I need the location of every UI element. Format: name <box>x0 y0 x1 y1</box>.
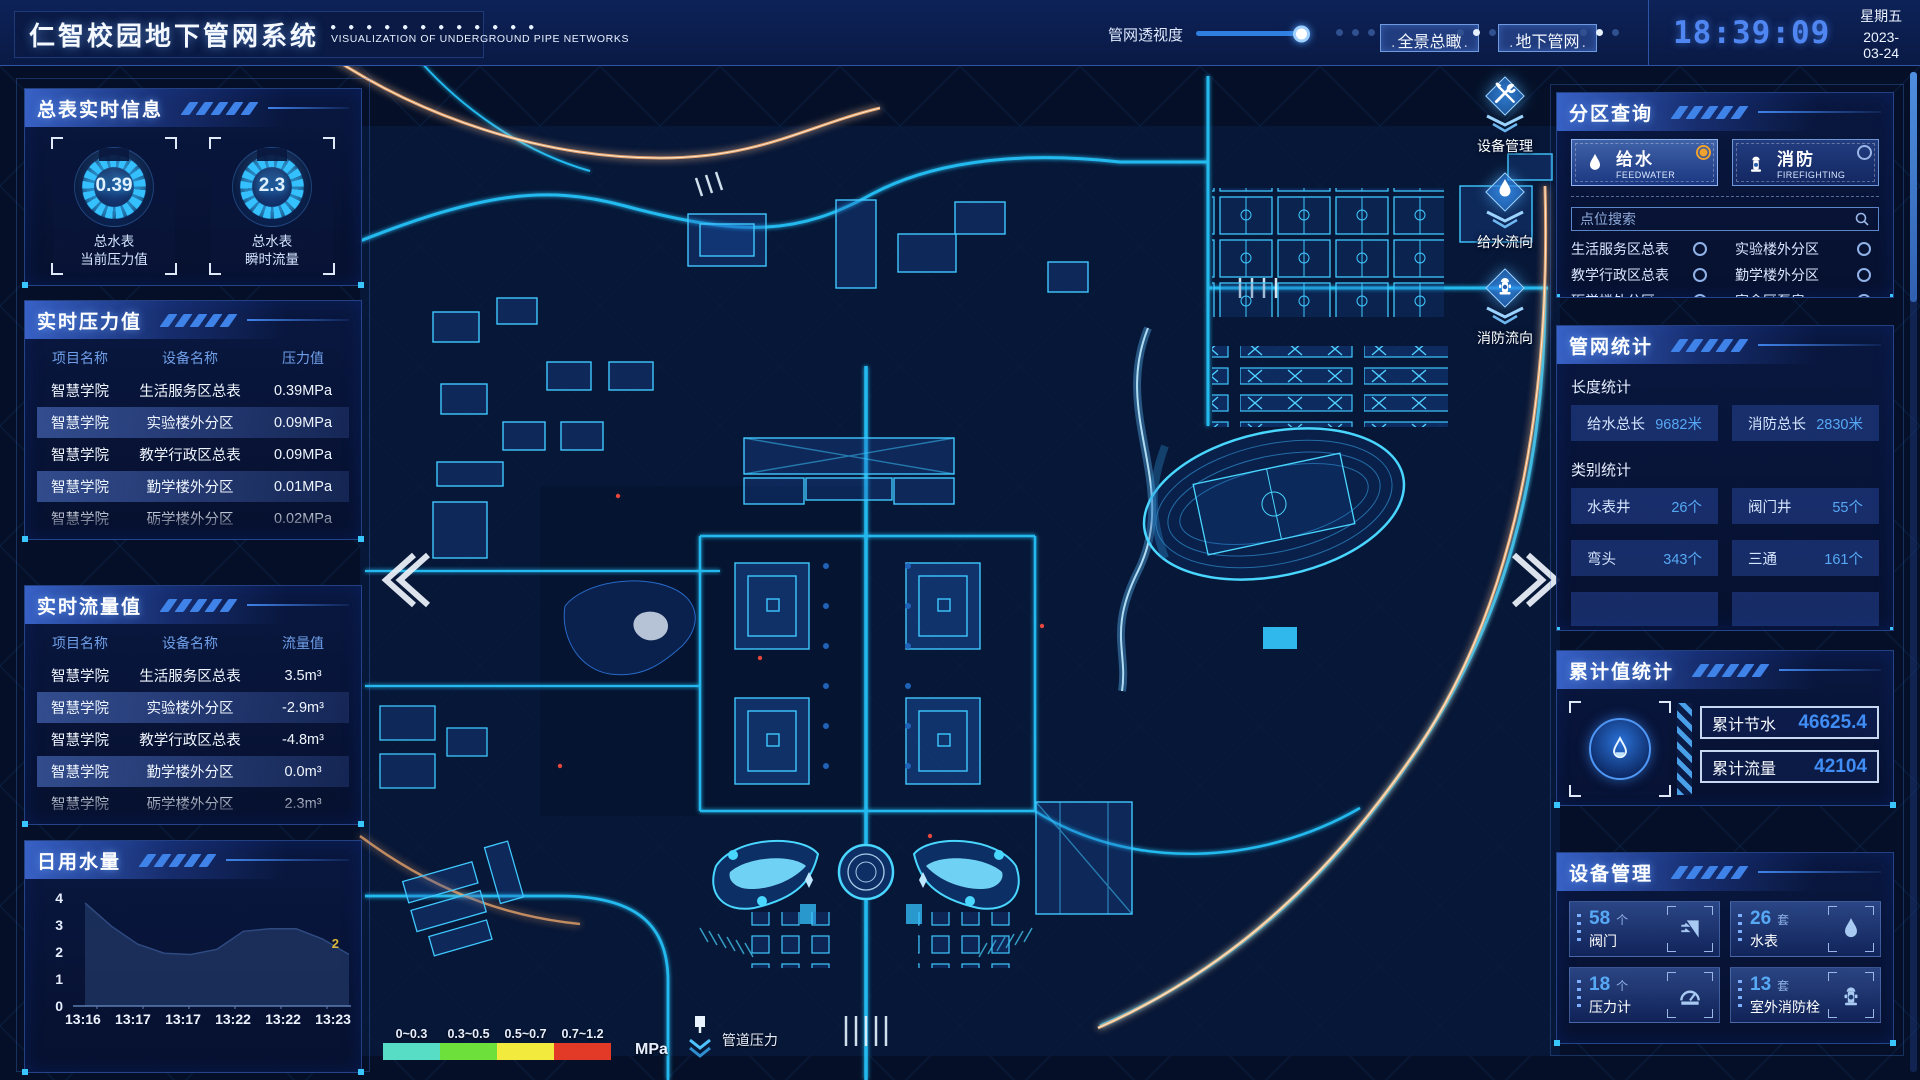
device-unit: 套 <box>1777 913 1789 927</box>
legend-color-segment <box>497 1043 554 1060</box>
cell: 智慧学院 <box>37 761 123 782</box>
hazard-stripe-decoration <box>1677 703 1692 795</box>
tool-label: 设备管理 <box>1477 136 1533 156</box>
flow-gauge: 2.3 <box>232 147 312 227</box>
dots-decoration <box>1580 29 1619 36</box>
gauge-label: 瞬时流量 <box>211 251 333 269</box>
panel-title: 管网统计 <box>1569 332 1653 359</box>
panel-header: 实时压力值 <box>25 301 361 339</box>
table-row: 智慧学院 生活服务区总表 0.39MPa <box>37 375 349 406</box>
gauge-value: 2.3 <box>233 175 311 197</box>
x-tick: 13:16 <box>65 1011 101 1027</box>
stat-item: 给水总长 9682米 <box>1571 405 1718 441</box>
cumulative-value: 42104 <box>1814 756 1867 778</box>
slashes-decoration <box>1675 106 1750 119</box>
panel-realtime-pressure: 实时压力值 项目名称 设备名称 压力值 智慧学院 生活服务区总表 0.39MPa… <box>24 300 362 540</box>
cell: 教学行政区总表 <box>123 729 257 750</box>
radio-selected[interactable] <box>1696 145 1711 160</box>
panel-header: 累计值统计 <box>1557 651 1893 689</box>
panel-title: 累计值统计 <box>1569 657 1674 684</box>
hydrant-icon <box>1830 974 1872 1016</box>
toggle-label-en: FIREFIGHTING <box>1777 170 1845 180</box>
stat-item: 消防总长 2830米 <box>1732 405 1879 441</box>
table-row: 智慧学院 实验楼外分区 -2.9m³ <box>37 692 349 723</box>
cell: 智慧学院 <box>37 412 123 433</box>
y-tick: 0 <box>41 998 63 1014</box>
option-label: 生活服务区总表 <box>1571 239 1669 259</box>
title-dots-decoration <box>331 25 547 30</box>
cell: 勤学楼外分区 <box>123 476 257 497</box>
map-tool-fire-flow[interactable]: 消防流向 <box>1477 264 1533 348</box>
zone-option[interactable]: 教学行政区总表 <box>1571 265 1715 285</box>
tool-label: 给水流向 <box>1477 232 1533 252</box>
scrollbar-thumb[interactable] <box>1910 72 1917 302</box>
stat-item: 阀门井 55个 <box>1732 488 1879 524</box>
cell: 0.0m³ <box>257 764 349 780</box>
device-unit: 个 <box>1616 979 1628 993</box>
cell: 0.39MPa <box>257 383 349 399</box>
table-row: 智慧学院 教学行政区总表 -4.8m³ <box>37 724 349 755</box>
header-bar: 仁智校园地下管网系统 VISUALIZATION OF UNDERGROUND … <box>0 0 1920 66</box>
column-header: 项目名称 <box>37 348 123 368</box>
stat-item-clipped <box>1732 592 1879 626</box>
zone-option[interactable]: 砺学楼外分区 <box>1571 291 1715 298</box>
zone-option[interactable]: 实验楼外分区 <box>1735 239 1879 259</box>
option-label: 勤学楼外分区 <box>1735 265 1819 285</box>
device-label: 室外消防栓 <box>1750 997 1830 1017</box>
map-tools: 设备管理 给水流向 消防流向 <box>1464 72 1546 348</box>
legend-range: 0.7~1.2 <box>554 1027 611 1041</box>
option-label: 教学行政区总表 <box>1571 265 1669 285</box>
pipe-opacity-slider[interactable] <box>1196 31 1306 36</box>
device-count: 26 <box>1750 908 1771 929</box>
radio-unselected[interactable] <box>1857 294 1871 298</box>
water-drop-icon <box>1482 168 1528 210</box>
cell: 智慧学院 <box>37 697 123 718</box>
cell: 智慧学院 <box>37 380 123 401</box>
panel-header: 分区查询 <box>1557 93 1893 131</box>
column-header: 设备名称 <box>123 348 257 368</box>
cell: 0.01MPa <box>257 479 349 495</box>
slashes-decoration <box>185 102 260 115</box>
stat-item-clipped <box>1571 592 1718 626</box>
panel-header: 日用水量 <box>25 841 361 879</box>
y-tick: 3 <box>41 917 63 933</box>
date: 2023-03-24 <box>1858 29 1904 61</box>
device-count: 13 <box>1750 974 1771 995</box>
chart-end-value: 2 <box>332 936 339 951</box>
gauge-card-pressure: 0.39 总水表 当前压力值 <box>53 139 175 273</box>
hydrant-icon <box>1482 264 1528 306</box>
firefighting-toggle-button[interactable]: 消防 FIREFIGHTING <box>1732 139 1879 186</box>
cell: 智慧学院 <box>37 729 123 750</box>
stat-value: 9682米 <box>1655 413 1702 434</box>
radio-unselected[interactable] <box>1693 294 1707 298</box>
stat-label: 水表井 <box>1587 496 1631 517</box>
panel-title: 设备管理 <box>1569 859 1653 886</box>
stat-label: 给水总长 <box>1587 413 1645 434</box>
legend-range: 0~0.3 <box>383 1027 440 1041</box>
stat-label: 阀门井 <box>1748 496 1792 517</box>
slashes-decoration <box>1696 664 1771 677</box>
pipe-pressure-icon <box>686 1014 714 1060</box>
cumulative-value: 46625.4 <box>1798 712 1867 734</box>
radio-unselected[interactable] <box>1693 242 1707 256</box>
water-saving-icon-card <box>1571 703 1669 795</box>
chevron-down-icon <box>1483 306 1527 326</box>
clock: 18:39:09 星期五 2023-03-24 <box>1648 0 1904 66</box>
cell: 教学行政区总表 <box>123 444 257 465</box>
y-tick: 4 <box>41 890 63 906</box>
daily-water-chart: 4 3 2 1 0 2 13:16 13:17 13:17 13:22 13:2… <box>25 879 361 1064</box>
map-tool-device-management[interactable]: 设备管理 <box>1477 72 1533 156</box>
chevron-down-icon <box>1483 114 1527 134</box>
y-tick: 1 <box>41 971 63 987</box>
cell: 0.02MPa <box>257 511 349 527</box>
toggle-label-en: FEEDWATER <box>1616 170 1675 180</box>
daily-water-area <box>73 893 351 1009</box>
legend-color-segment <box>554 1043 611 1060</box>
stat-item: 三通 161个 <box>1732 540 1879 576</box>
tool-label: 消防流向 <box>1477 328 1533 348</box>
dots-decoration <box>1336 29 1375 36</box>
legend-unit: MPa <box>635 1041 668 1059</box>
pressure-gauge: 0.39 <box>74 147 154 227</box>
device-card-pressure-gauge[interactable]: 18个 压力计 <box>1569 967 1720 1023</box>
device-card-outdoor-hydrant[interactable]: 13套 室外消防栓 <box>1730 967 1881 1023</box>
slashes-decoration <box>164 314 239 327</box>
cell: 实验楼外分区 <box>123 697 257 718</box>
cell: 智慧学院 <box>37 508 123 529</box>
search-input[interactable] <box>1572 211 1854 227</box>
cell: 智慧学院 <box>37 444 123 465</box>
option-label: 砺学楼外分区 <box>1571 291 1655 298</box>
legend-color-segment <box>440 1043 497 1060</box>
panel-title: 实时压力值 <box>37 307 142 334</box>
radio-unselected[interactable] <box>1693 268 1707 282</box>
app-subtitle: VISUALIZATION OF UNDERGROUND PIPE NETWOR… <box>331 33 629 45</box>
stat-label: 弯头 <box>1587 548 1616 569</box>
time-display: 18:39:09 <box>1673 15 1830 51</box>
pipe-opacity-label: 管网透视度 <box>1108 24 1183 45</box>
radio-unselected[interactable] <box>1857 268 1871 282</box>
cell: 勤学楼外分区 <box>123 761 257 782</box>
panel-header: 总表实时信息 <box>25 89 361 127</box>
zone-option[interactable]: 勤学楼外分区 <box>1735 265 1879 285</box>
point-search-box <box>1571 207 1879 231</box>
slider-thumb[interactable] <box>1293 25 1310 42</box>
x-tick: 13:22 <box>215 1011 251 1027</box>
panel-daily-water: 日用水量 4 3 2 1 0 2 13:16 13:17 13:17 13:22… <box>24 840 362 1073</box>
slashes-decoration <box>164 599 239 612</box>
chevron-down-icon <box>1483 210 1527 230</box>
dots-decoration <box>1457 29 1496 36</box>
table-row: 智慧学院 实验楼外分区 0.09MPa <box>37 407 349 438</box>
category-stats-label: 类别统计 <box>1571 459 1879 480</box>
cell: -2.9m³ <box>257 700 349 716</box>
stat-value: 343个 <box>1663 548 1702 569</box>
device-count: 58 <box>1589 908 1610 929</box>
cell: 3.5m³ <box>257 668 349 684</box>
slashes-decoration <box>1675 866 1750 879</box>
cell: 实验楼外分区 <box>123 412 257 433</box>
panel-device-management: 设备管理 58个 阀门 26套 水表 <box>1556 852 1894 1044</box>
table-row: 智慧学院 砺学楼外分区 0.02MPa <box>37 503 349 534</box>
x-tick: 13:23 <box>315 1011 351 1027</box>
app-title: 仁智校园地下管网系统 <box>29 16 319 53</box>
map-scrollbar[interactable] <box>1910 72 1917 1072</box>
dashed-divider <box>1571 196 1879 197</box>
cell: -4.8m³ <box>257 732 349 748</box>
device-card-valve[interactable]: 58个 阀门 <box>1569 901 1720 957</box>
cell: 0.09MPa <box>257 415 349 431</box>
legend-range: 0.3~0.5 <box>440 1027 497 1041</box>
gauge-label: 总水表 <box>211 233 333 251</box>
panel-title: 实时流量值 <box>37 592 142 619</box>
table-row: 智慧学院 教学行政区总表 0.09MPa <box>37 439 349 470</box>
hydrant-icon <box>1745 152 1767 174</box>
cell: 智慧学院 <box>37 665 123 686</box>
wrench-icon <box>1482 72 1528 114</box>
table-row: 智慧学院 勤学楼外分区 0.0m³ <box>37 756 349 787</box>
stat-item: 弯头 343个 <box>1571 540 1718 576</box>
device-card-water-meter[interactable]: 26套 水表 <box>1730 901 1881 957</box>
column-header: 压力值 <box>257 348 349 368</box>
column-header: 设备名称 <box>123 633 257 653</box>
stat-value: 161个 <box>1824 548 1863 569</box>
cell: 砺学楼外分区 <box>123 508 257 529</box>
x-tick: 13:17 <box>115 1011 151 1027</box>
zone-option[interactable]: 生活服务区总表 <box>1571 239 1715 259</box>
panel-realtime-meter-info: 总表实时信息 0.39 总水表 当前压力值 2.3 总水表 瞬时流量 <box>24 88 362 286</box>
stat-value: 26个 <box>1671 496 1702 517</box>
panel-cumulative-stats: 累计值统计 累计节水 46625.4 累计流量 42104 <box>1556 650 1894 806</box>
stat-label: 三通 <box>1748 548 1777 569</box>
water-drop-icon <box>1830 908 1872 950</box>
feedwater-toggle-button[interactable]: 给水 FEEDWATER <box>1571 139 1718 186</box>
app-title-box: 仁智校园地下管网系统 VISUALIZATION OF UNDERGROUND … <box>14 11 484 58</box>
cell: 智慧学院 <box>37 476 123 497</box>
option-label: 实验楼外分区 <box>1735 239 1819 259</box>
pressure-gauge-icon <box>1669 974 1711 1016</box>
x-axis-labels: 13:16 13:17 13:17 13:22 13:22 13:23 <box>65 1011 351 1027</box>
table-row: 智慧学院 生活服务区总表 3.5m³ <box>37 660 349 691</box>
legend-range: 0.5~0.7 <box>497 1027 554 1041</box>
table-row: 智慧学院 砺学楼外分区 2.3m³ <box>37 788 349 819</box>
legend-color-segment <box>383 1043 440 1060</box>
map-tool-feedwater-flow[interactable]: 给水流向 <box>1477 168 1533 252</box>
cumulative-label: 累计节水 <box>1712 711 1776 735</box>
x-tick: 13:22 <box>265 1011 301 1027</box>
panel-header: 实时流量值 <box>25 586 361 624</box>
legend-pipe-label: 管道压力 <box>722 1030 778 1050</box>
cell: 智慧学院 <box>37 793 123 814</box>
panel-header: 管网统计 <box>1557 326 1893 364</box>
length-stats-label: 长度统计 <box>1571 376 1879 397</box>
stat-label: 消防总长 <box>1748 413 1806 434</box>
slashes-decoration <box>1675 339 1750 352</box>
stat-value: 55个 <box>1832 496 1863 517</box>
toggle-label-cn: 给水 <box>1616 145 1675 170</box>
panel-pipe-stats: 管网统计 长度统计 给水总长 9682米 消防总长 2830米 类别统计 水表井… <box>1556 325 1894 631</box>
gauge-label: 总水表 <box>53 233 175 251</box>
table-row: 智慧学院 勤学楼外分区 0.01MPa <box>37 471 349 502</box>
table-header: 项目名称 设备名称 压力值 <box>37 339 349 375</box>
stat-item: 水表井 26个 <box>1571 488 1718 524</box>
panel-title: 日用水量 <box>37 847 121 874</box>
pressure-table-body: 智慧学院 生活服务区总表 0.39MPa 智慧学院 实验楼外分区 0.09MPa… <box>37 375 349 539</box>
cell: 砺学楼外分区 <box>123 793 257 814</box>
radio-unselected[interactable] <box>1857 145 1872 160</box>
column-header: 项目名称 <box>37 633 123 653</box>
device-unit: 套 <box>1777 979 1789 993</box>
flow-table-body: 智慧学院 生活服务区总表 3.5m³ 智慧学院 实验楼外分区 -2.9m³ 智慧… <box>37 660 349 824</box>
valve-icon <box>1669 908 1711 950</box>
gauge-value: 0.39 <box>75 175 153 197</box>
table-header: 项目名称 设备名称 流量值 <box>37 624 349 660</box>
panel-title: 分区查询 <box>1569 99 1653 126</box>
cumulative-row: 累计节水 46625.4 <box>1700 706 1879 739</box>
x-tick: 13:17 <box>165 1011 201 1027</box>
panel-header: 设备管理 <box>1557 853 1893 891</box>
device-label: 压力计 <box>1589 997 1669 1017</box>
weekday: 星期五 <box>1858 6 1904 26</box>
cumulative-row: 累计流量 42104 <box>1700 750 1879 783</box>
radio-unselected[interactable] <box>1857 242 1871 256</box>
cell: 生活服务区总表 <box>123 380 257 401</box>
cell: 生活服务区总表 <box>123 665 257 686</box>
device-label: 阀门 <box>1589 931 1669 951</box>
option-label: 宿舍区泵房 <box>1735 291 1805 298</box>
column-header: 流量值 <box>257 633 349 653</box>
pipe-pressure-legend: 0~0.3 0.3~0.5 0.5~0.7 0.7~1.2 MPa 管道压力 <box>383 1014 778 1060</box>
slashes-decoration <box>143 854 218 867</box>
cumulative-label: 累计流量 <box>1712 755 1776 779</box>
gauge-label: 当前压力值 <box>53 251 175 269</box>
y-tick: 2 <box>41 944 63 960</box>
zone-option[interactable]: 宿舍区泵房 <box>1735 291 1879 298</box>
water-drop-icon <box>1584 152 1606 174</box>
device-count: 18 <box>1589 974 1610 995</box>
stat-value: 2830米 <box>1816 413 1863 434</box>
device-unit: 个 <box>1616 913 1628 927</box>
water-drop-icon <box>1589 718 1651 780</box>
device-label: 水表 <box>1750 931 1830 951</box>
cell: 2.3m³ <box>257 796 349 812</box>
panel-realtime-flow: 实时流量值 项目名称 设备名称 流量值 智慧学院 生活服务区总表 3.5m³ 智… <box>24 585 362 825</box>
zone-option-list: 生活服务区总表 实验楼外分区 教学行政区总表 勤学楼外分区 砺学楼外分区 宿舍区… <box>1571 239 1879 298</box>
panel-title: 总表实时信息 <box>37 95 163 122</box>
cell: 0.09MPa <box>257 447 349 463</box>
toggle-label-cn: 消防 <box>1777 145 1845 170</box>
gauge-card-flow: 2.3 总水表 瞬时流量 <box>211 139 333 273</box>
panel-zone-query: 分区查询 给水 FEEDWATER 消防 FIREFIGHTING <box>1556 92 1894 298</box>
search-icon[interactable] <box>1854 211 1870 227</box>
